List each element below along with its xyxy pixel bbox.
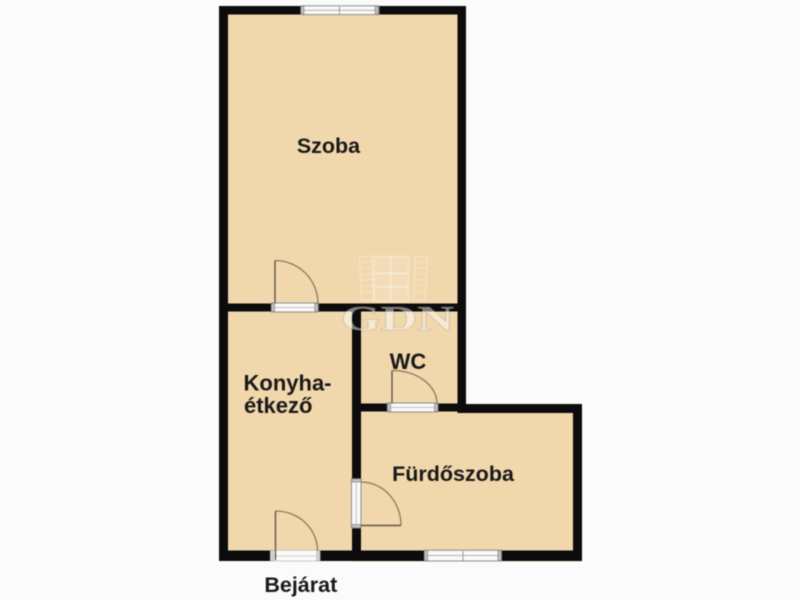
svg-text:Fürdőszoba: Fürdőszoba bbox=[392, 462, 515, 486]
svg-text:GDN: GDN bbox=[341, 299, 454, 338]
svg-text:Konyha-: Konyha- bbox=[244, 370, 332, 395]
svg-text:WC: WC bbox=[390, 349, 427, 374]
svg-text:Bejárat: Bejárat bbox=[264, 573, 337, 597]
svg-text:Szoba: Szoba bbox=[297, 134, 361, 158]
svg-text:étkező: étkező bbox=[244, 393, 312, 418]
